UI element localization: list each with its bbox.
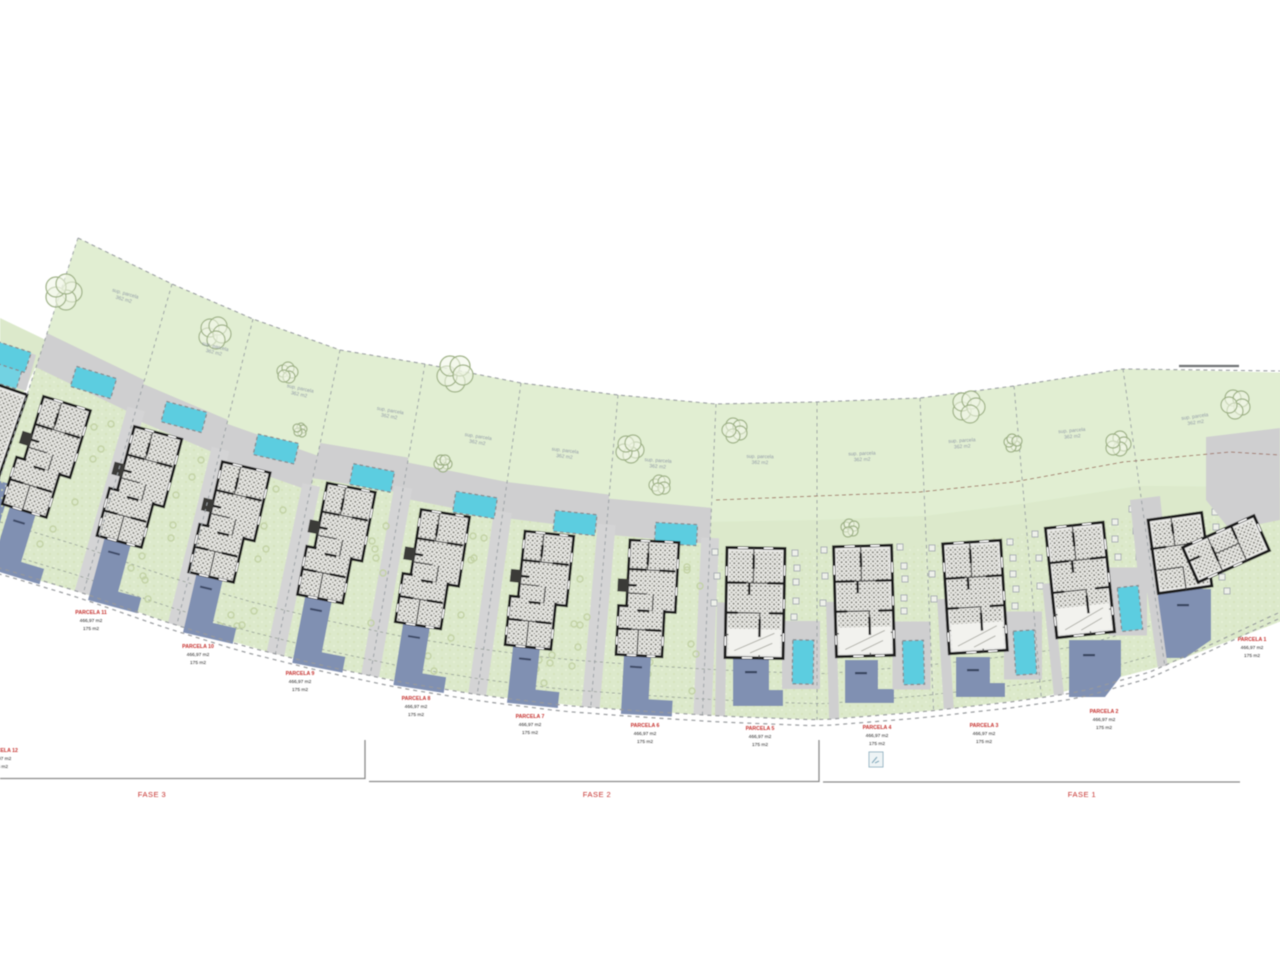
svg-text:466,97 m2: 466,97 m2 xyxy=(973,731,996,737)
svg-text:175 m2: 175 m2 xyxy=(522,730,538,736)
svg-text:175 m2: 175 m2 xyxy=(190,660,206,666)
svg-text:466,97 m2: 466,97 m2 xyxy=(187,652,210,658)
svg-text:466,97 m2: 466,97 m2 xyxy=(519,722,542,728)
svg-text:PARCELA 1: PARCELA 1 xyxy=(1238,637,1267,643)
svg-text:466,97 m2: 466,97 m2 xyxy=(634,731,657,737)
svg-text:466,97 m2: 466,97 m2 xyxy=(405,704,428,710)
svg-text:PARCELA 7: PARCELA 7 xyxy=(516,714,545,720)
svg-text:466,97 m2: 466,97 m2 xyxy=(866,733,889,739)
svg-text:175 m2: 175 m2 xyxy=(0,764,8,770)
svg-text:PARCELA 3: PARCELA 3 xyxy=(970,723,999,729)
svg-text:175 m2: 175 m2 xyxy=(292,687,308,693)
svg-text:466,97 m2: 466,97 m2 xyxy=(0,756,12,762)
svg-text:175 m2: 175 m2 xyxy=(408,712,424,718)
svg-text:466,97 m2: 466,97 m2 xyxy=(1093,717,1116,723)
svg-text:FASE 2: FASE 2 xyxy=(583,790,611,799)
svg-text:FASE 1: FASE 1 xyxy=(1068,790,1096,799)
svg-text:466,97 m2: 466,97 m2 xyxy=(289,679,312,685)
svg-text:362 m2: 362 m2 xyxy=(752,460,769,466)
svg-text:PARCELA 11: PARCELA 11 xyxy=(75,610,107,616)
svg-text:362 m2: 362 m2 xyxy=(954,443,971,450)
svg-text:466,97 m2: 466,97 m2 xyxy=(749,734,772,740)
svg-text:PARCELA 4: PARCELA 4 xyxy=(863,725,892,731)
svg-text:FASE 3: FASE 3 xyxy=(138,790,166,799)
svg-text:175 m2: 175 m2 xyxy=(1244,653,1260,659)
svg-text:PARCELA 9: PARCELA 9 xyxy=(286,671,315,677)
svg-text:PARCELA 5: PARCELA 5 xyxy=(746,726,775,732)
svg-text:175 m2: 175 m2 xyxy=(637,739,653,745)
svg-text:PARCELA 10: PARCELA 10 xyxy=(182,644,214,650)
svg-text:175 m2: 175 m2 xyxy=(1096,725,1112,731)
svg-text:175 m2: 175 m2 xyxy=(752,742,768,748)
svg-text:362 m2: 362 m2 xyxy=(854,457,871,464)
svg-text:362 m2: 362 m2 xyxy=(649,463,666,470)
svg-text:466,97 m2: 466,97 m2 xyxy=(1241,645,1264,651)
svg-text:175 m2: 175 m2 xyxy=(83,626,99,632)
svg-text:175 m2: 175 m2 xyxy=(869,741,885,747)
svg-text:PARCELA 2: PARCELA 2 xyxy=(1090,709,1119,715)
svg-text:175 m2: 175 m2 xyxy=(976,739,992,745)
svg-text:PARCELA 6: PARCELA 6 xyxy=(631,723,660,729)
svg-text:466,97 m2: 466,97 m2 xyxy=(80,618,103,624)
svg-text:PARCELA 12: PARCELA 12 xyxy=(0,748,18,754)
svg-text:PARCELA 8: PARCELA 8 xyxy=(402,696,431,702)
